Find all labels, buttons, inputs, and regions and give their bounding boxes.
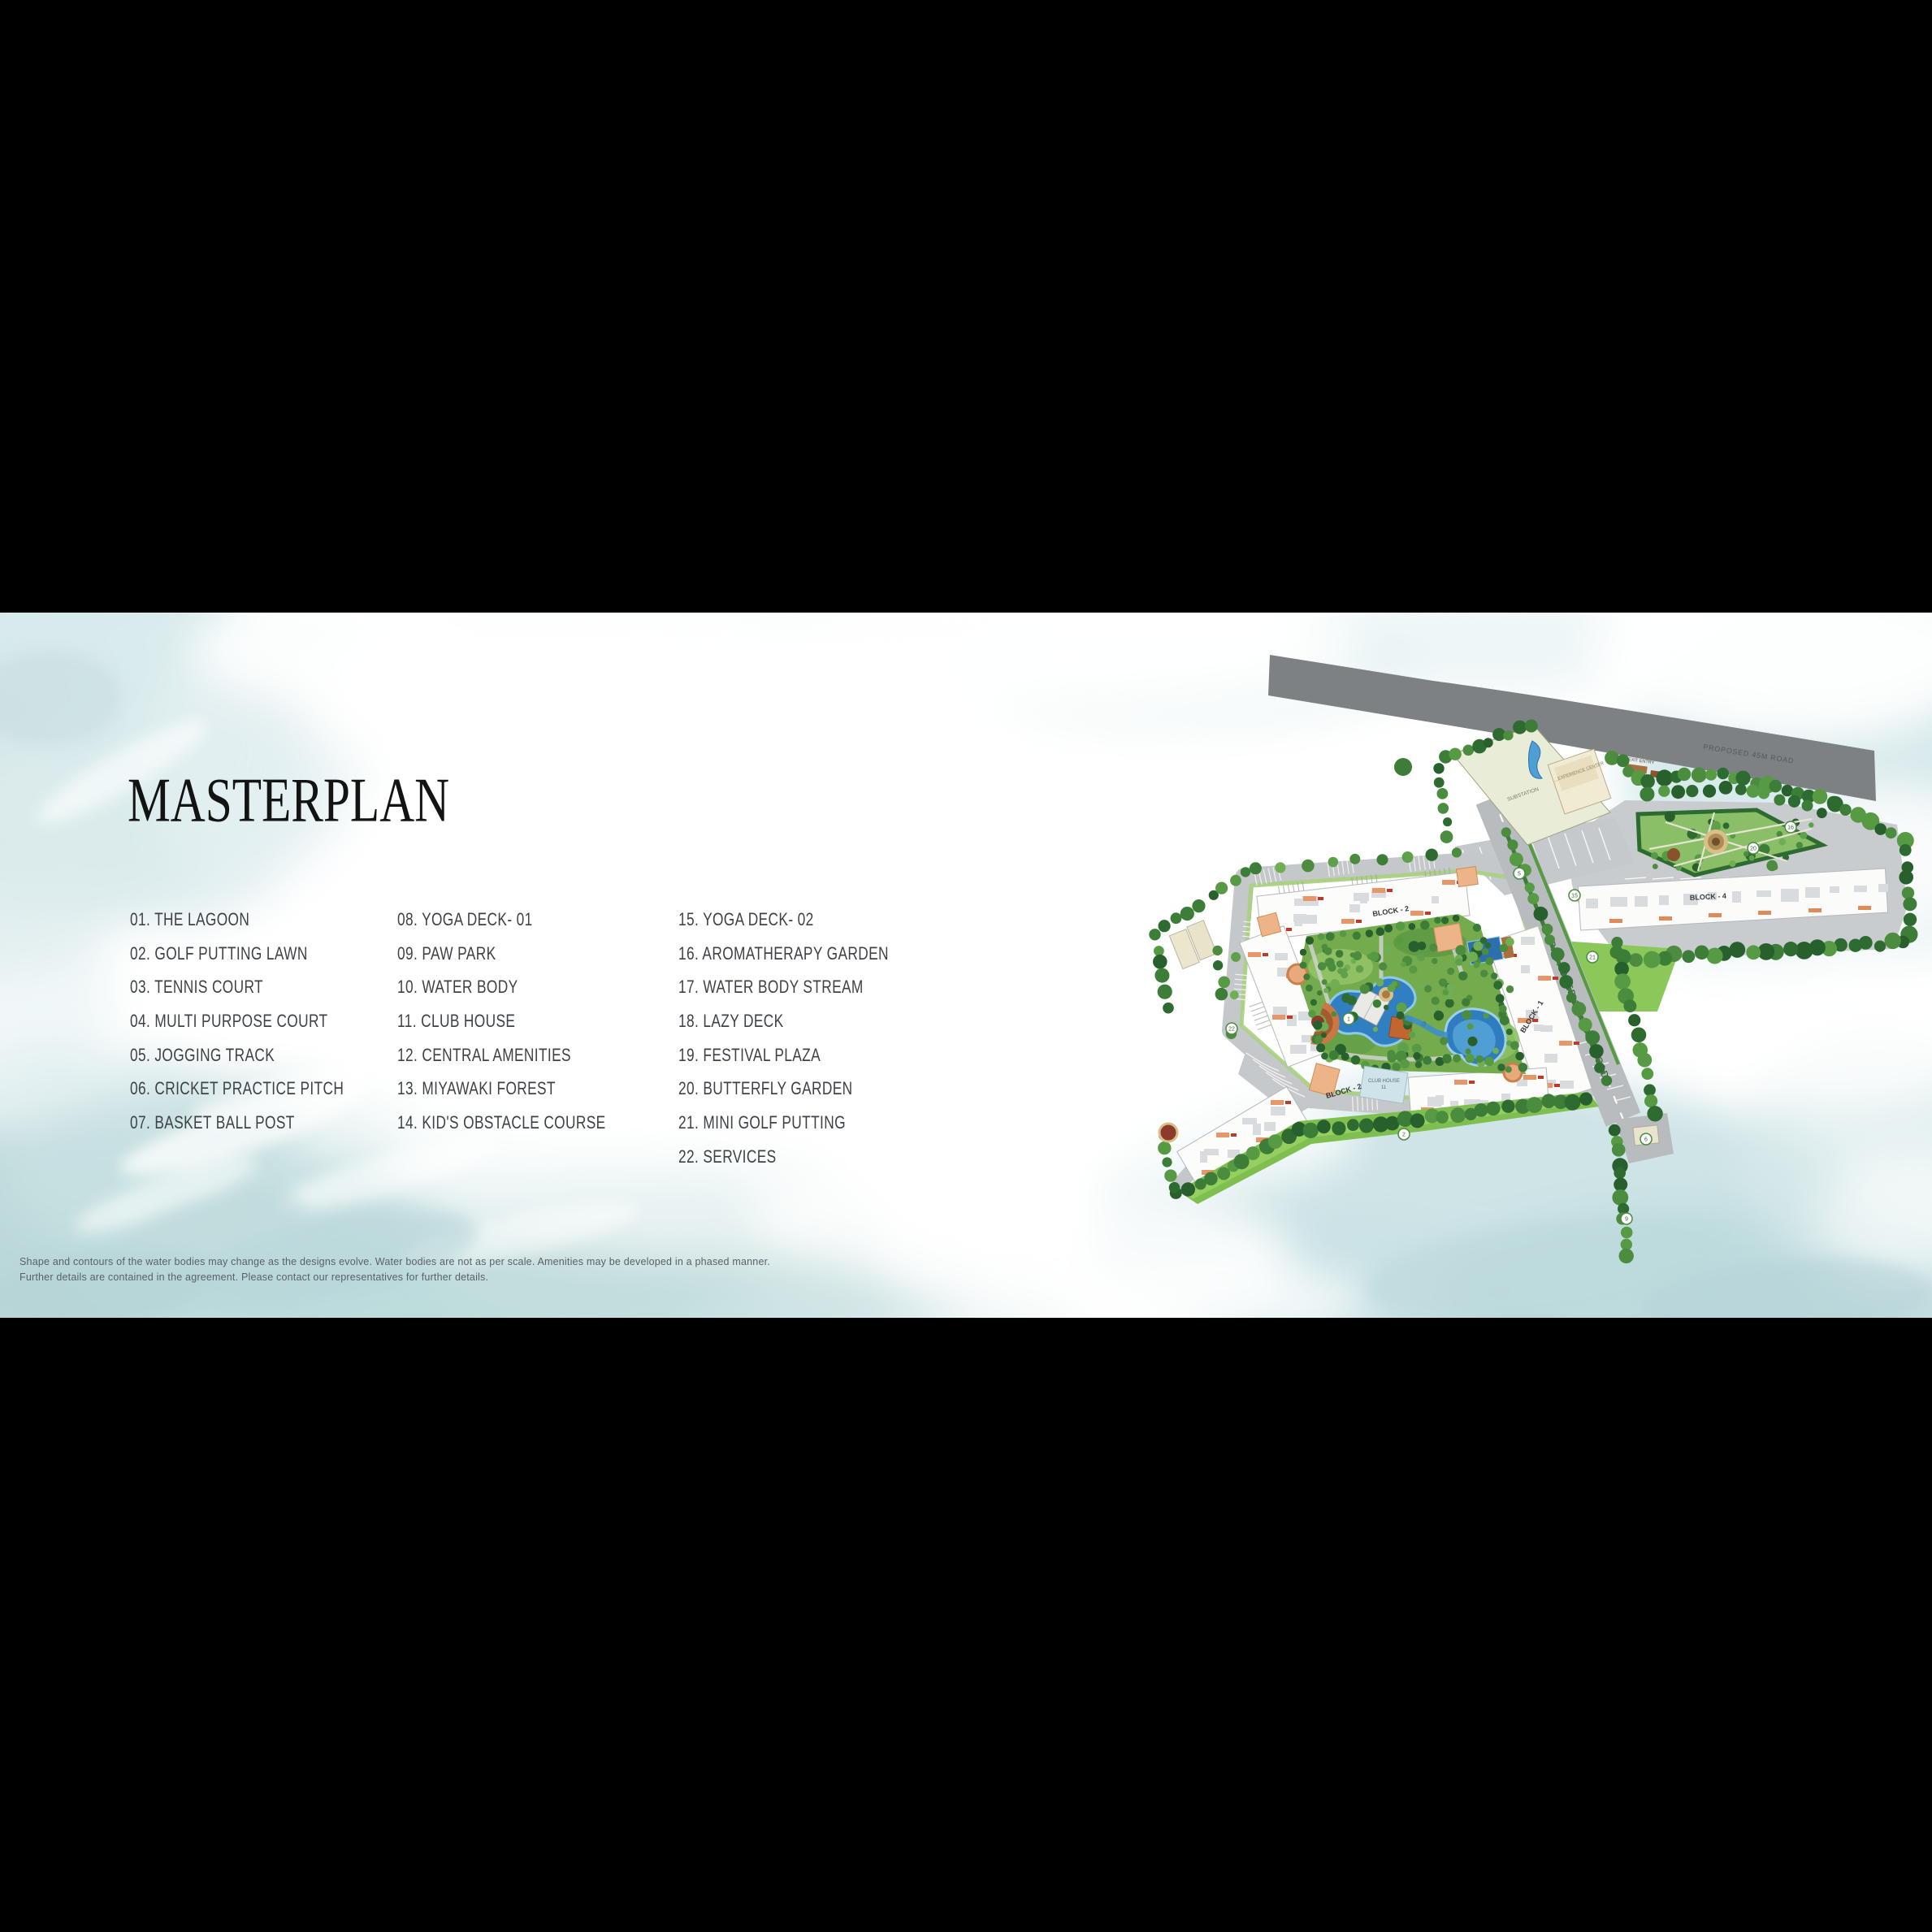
- svg-text:20: 20: [1750, 847, 1757, 852]
- svg-text:15: 15: [1571, 894, 1578, 899]
- svg-text:9: 9: [1625, 1217, 1628, 1223]
- svg-text:CLUB HOUSE: CLUB HOUSE: [1368, 1079, 1400, 1084]
- svg-text:16: 16: [1787, 825, 1794, 831]
- svg-text:11: 11: [1381, 1085, 1387, 1090]
- svg-text:MASTERPLAN: MASTERPLAN: [128, 765, 449, 835]
- svg-text:5: 5: [1518, 872, 1521, 877]
- svg-text:2: 2: [1402, 1133, 1406, 1138]
- svg-text:6: 6: [1644, 1137, 1648, 1143]
- svg-text:22: 22: [1228, 1027, 1235, 1033]
- svg-text:21: 21: [1589, 955, 1596, 961]
- svg-text:1: 1: [1347, 1017, 1350, 1023]
